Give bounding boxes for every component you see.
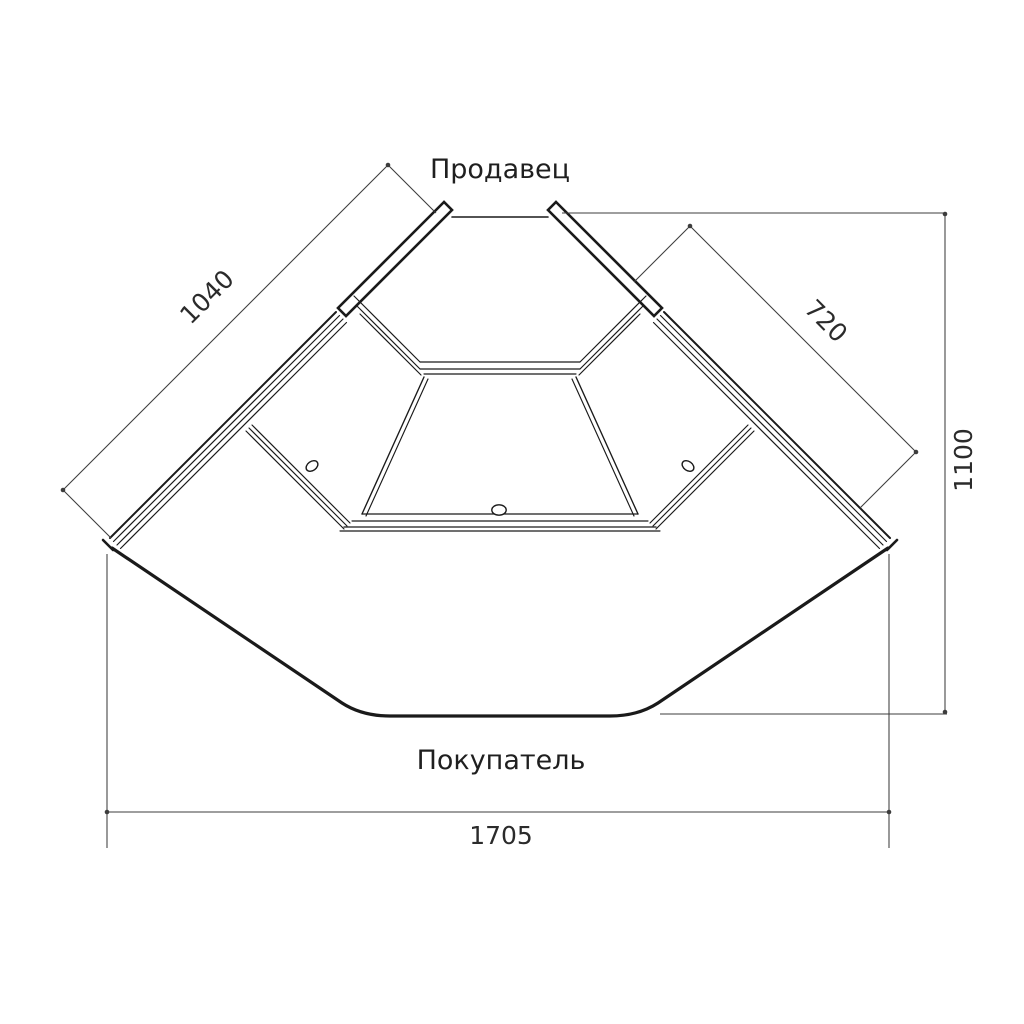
arrow-dot xyxy=(105,810,110,815)
connector-line xyxy=(579,314,640,375)
right-deck-edge-band xyxy=(650,425,754,529)
arrow-dot xyxy=(943,710,948,715)
deck-edge-line xyxy=(656,431,754,529)
well-right-edge-inner xyxy=(572,379,634,516)
arrow-dot xyxy=(61,488,66,493)
deck-edge-line xyxy=(249,428,347,526)
connector-line xyxy=(360,314,421,375)
seller-side-label: Продавец xyxy=(430,154,570,185)
dimension-value-left-glass: 1040 xyxy=(174,264,239,329)
arrow-dot xyxy=(887,810,892,815)
dimension-value-front-width: 1705 xyxy=(469,821,533,850)
connector-line xyxy=(354,296,420,362)
display-well xyxy=(362,377,638,516)
connector-line xyxy=(580,306,643,369)
well-left-edge-inner xyxy=(366,379,428,516)
dimension-value-depth: 1100 xyxy=(949,428,978,492)
right-top-rail xyxy=(548,202,662,316)
well-right-edge xyxy=(576,377,638,514)
well-left-edge xyxy=(362,377,424,514)
right-deck-hole xyxy=(680,459,696,474)
connector-line xyxy=(580,296,646,362)
corner-counter-technical-drawing: 1040 720 1100 1705 Продавец Покупатель xyxy=(0,0,1024,1024)
left-corner-cap xyxy=(103,540,113,550)
right-glass-line xyxy=(654,323,880,549)
extension-line xyxy=(634,226,690,282)
dimension-value-right-glass: 720 xyxy=(799,294,853,348)
display-deck xyxy=(246,296,754,531)
extension-line xyxy=(63,490,111,538)
dimension-line xyxy=(63,165,388,490)
left-glass-outer-edge xyxy=(110,312,336,538)
left-deck-edge-band xyxy=(246,425,350,529)
deck-edge-line xyxy=(252,425,350,523)
left-glass-band xyxy=(110,312,347,549)
connector-line xyxy=(357,306,420,369)
left-glass-line xyxy=(117,319,343,545)
dimension-right-glass: 720 xyxy=(634,224,918,508)
right-shelf-connector xyxy=(579,296,646,375)
left-top-rail xyxy=(338,202,452,316)
deck-edge-line xyxy=(246,431,344,529)
deck-edge-line xyxy=(653,428,751,526)
left-shelf-connector xyxy=(354,296,421,375)
buyer-side-label: Покупатель xyxy=(417,745,586,776)
right-glass-outer-edge xyxy=(664,312,890,538)
dimension-front-width: 1705 xyxy=(105,554,892,850)
arrow-dot xyxy=(914,450,919,455)
arrow-dot xyxy=(943,212,948,217)
extension-line xyxy=(860,452,916,508)
deck-edge-line xyxy=(650,425,748,523)
dimension-line xyxy=(690,226,916,452)
arrow-dot xyxy=(688,224,693,229)
arrow-dot xyxy=(386,163,391,168)
front-panel-outline xyxy=(112,548,888,716)
left-glass-line xyxy=(121,323,347,549)
extension-line xyxy=(388,165,436,213)
right-glass-line xyxy=(657,319,883,545)
left-deck-hole xyxy=(304,459,320,474)
right-glass-line xyxy=(661,316,887,542)
center-deck-hole xyxy=(492,505,506,515)
dimension-left-glass: 1040 xyxy=(61,163,436,538)
drawing-canvas: 1040 720 1100 1705 Продавец Покупатель xyxy=(0,0,1024,1024)
right-glass-band xyxy=(654,312,891,549)
right-corner-cap xyxy=(887,540,897,550)
left-glass-line xyxy=(114,316,340,542)
